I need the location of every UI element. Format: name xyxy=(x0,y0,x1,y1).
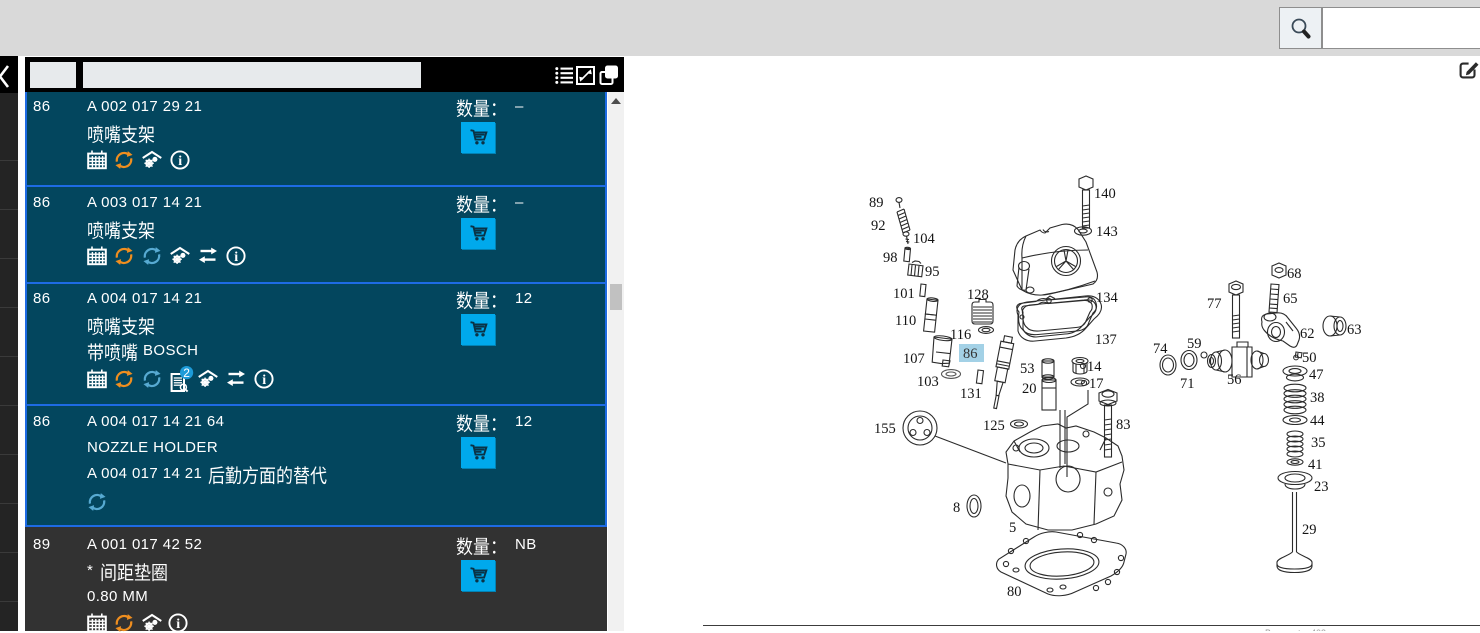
svg-text:47: 47 xyxy=(1309,367,1324,383)
svg-text:134: 134 xyxy=(1096,290,1119,306)
svg-text:23: 23 xyxy=(1314,479,1329,495)
svg-text:68: 68 xyxy=(1287,266,1302,282)
svg-text:56: 56 xyxy=(1227,372,1242,388)
svg-text:59: 59 xyxy=(1187,336,1202,352)
svg-text:143: 143 xyxy=(1096,224,1118,240)
svg-text:5: 5 xyxy=(1009,520,1016,536)
svg-text:104: 104 xyxy=(913,231,936,247)
svg-text:62: 62 xyxy=(1300,326,1315,342)
svg-text:103: 103 xyxy=(917,374,939,390)
svg-text:128: 128 xyxy=(967,287,989,303)
svg-text:35: 35 xyxy=(1311,435,1326,451)
svg-text:86: 86 xyxy=(963,346,978,362)
svg-text:14: 14 xyxy=(1087,359,1102,375)
svg-text:i: i xyxy=(262,373,266,388)
svg-text:50: 50 xyxy=(1302,350,1317,366)
svg-text:20: 20 xyxy=(1022,381,1037,397)
svg-text:116: 116 xyxy=(950,327,971,343)
svg-text:74: 74 xyxy=(1153,341,1168,357)
svg-text:i: i xyxy=(178,154,182,169)
svg-text:44: 44 xyxy=(1310,413,1325,429)
svg-text:140: 140 xyxy=(1094,186,1116,202)
svg-text:8: 8 xyxy=(953,500,960,516)
svg-text:131: 131 xyxy=(960,386,982,402)
svg-text:2: 2 xyxy=(183,366,190,380)
svg-text:29: 29 xyxy=(1302,522,1317,538)
svg-text:53: 53 xyxy=(1020,361,1035,377)
svg-text:89: 89 xyxy=(869,195,884,211)
svg-text:41: 41 xyxy=(1308,457,1323,473)
svg-text:95: 95 xyxy=(925,264,940,280)
svg-text:98: 98 xyxy=(883,250,898,266)
svg-text:i: i xyxy=(176,617,180,632)
svg-text:83: 83 xyxy=(1116,417,1131,433)
svg-text:17: 17 xyxy=(1089,376,1104,392)
svg-text:71: 71 xyxy=(1180,376,1195,392)
svg-text:110: 110 xyxy=(895,313,916,329)
svg-text:77: 77 xyxy=(1207,296,1222,312)
svg-text:80: 80 xyxy=(1007,584,1022,600)
svg-text:i: i xyxy=(234,250,238,265)
svg-text:107: 107 xyxy=(903,351,925,367)
svg-text:65: 65 xyxy=(1283,291,1298,307)
svg-text:38: 38 xyxy=(1310,390,1325,406)
svg-text:92: 92 xyxy=(871,218,886,234)
svg-text:101: 101 xyxy=(893,286,915,302)
svg-text:137: 137 xyxy=(1095,332,1117,348)
svg-text:63: 63 xyxy=(1347,322,1362,338)
svg-text:125: 125 xyxy=(983,418,1005,434)
svg-text:155: 155 xyxy=(874,421,896,437)
